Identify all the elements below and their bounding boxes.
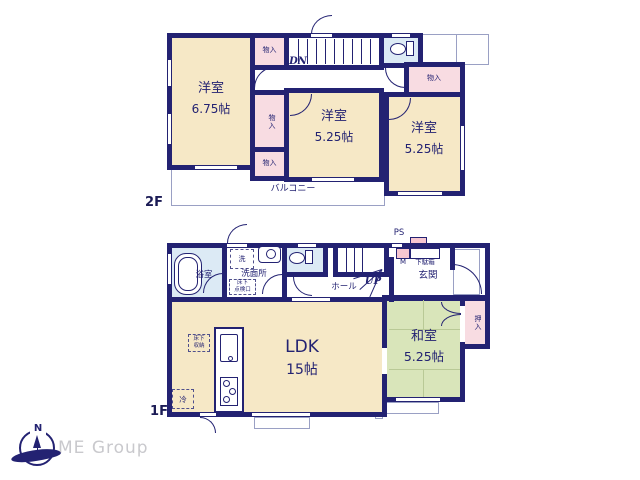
window xyxy=(392,33,410,38)
stove-burner-icon xyxy=(229,388,236,395)
floor1-label: 1F xyxy=(147,405,171,420)
ps-label: PS xyxy=(386,229,412,239)
bedroom2-name: 洋室 xyxy=(299,110,369,125)
closet-mid-label: 物入 xyxy=(263,100,276,144)
washitsu-size: 5.25帖 xyxy=(390,350,458,364)
ldk-entry-gap xyxy=(292,297,330,302)
stove-burner-icon xyxy=(223,396,230,403)
window xyxy=(167,60,172,86)
wall xyxy=(167,243,490,248)
bedroom1-name: 洋室 xyxy=(176,82,246,97)
fridge-label: 冷 xyxy=(179,395,187,404)
stairs-dn-label: DN xyxy=(286,56,310,68)
sink-basin-icon xyxy=(266,249,276,259)
bedroom2-size: 5.25帖 xyxy=(297,131,371,145)
washitsu-name: 和室 xyxy=(392,330,456,345)
floor-plan-canvas: バルコニー 洋室 6.75帖 物入 DN 物入 洋室 5.25帖 洋室 5.25… xyxy=(0,0,640,480)
stair-tread xyxy=(354,248,355,272)
backdoor-arc xyxy=(227,224,247,243)
toilet-bowl-2f-icon xyxy=(390,43,406,55)
toilet-bowl-1f-icon xyxy=(289,252,305,264)
bedroom3-name: 洋室 xyxy=(389,122,459,137)
meter-box: M xyxy=(396,248,410,259)
bedroom3-size: 5.25帖 xyxy=(387,143,461,157)
door-arc-ldk-terrace xyxy=(200,417,216,433)
balcony-label: バルコニー xyxy=(233,184,353,194)
compass-north-label: N xyxy=(30,423,46,435)
underfloor-inspection-box: 床下 点検口 xyxy=(229,279,256,295)
hall-label: ホール xyxy=(322,283,366,293)
door-arc-toilet-2f xyxy=(385,68,405,88)
entrance-label: 玄関 xyxy=(406,271,450,282)
oshiire-label: 押入 xyxy=(469,308,482,338)
window xyxy=(396,397,440,402)
ldk-name: LDK xyxy=(257,338,347,358)
underfloor-storage-label: 床下 収納 xyxy=(193,336,204,349)
door-gap xyxy=(227,243,247,248)
closet-top-label: 物入 xyxy=(252,46,287,54)
tatami-line xyxy=(389,369,460,370)
window xyxy=(167,114,172,144)
kitchen-faucet-icon xyxy=(228,356,233,361)
shoebox-label: 下駄箱 xyxy=(415,258,435,266)
ps-shaft xyxy=(410,237,427,244)
washer-label: 洗 xyxy=(239,255,246,263)
window xyxy=(398,191,442,196)
tatami-line xyxy=(423,300,424,329)
window xyxy=(298,243,316,248)
brand-logo-text: ME Group xyxy=(58,438,198,458)
closet-right-label: 物入 xyxy=(414,74,454,82)
compass-needle-icon xyxy=(33,435,41,448)
toilet-tank-1f-icon xyxy=(305,250,313,264)
underfloor-storage-box: 床下 収納 xyxy=(188,334,210,352)
window xyxy=(252,412,310,417)
terrace-outline xyxy=(254,417,310,429)
window xyxy=(195,165,237,170)
stair-tread xyxy=(346,248,347,272)
toilet-tank-2f-icon xyxy=(406,41,414,56)
washroom-label: 洗面所 xyxy=(225,270,283,280)
meter-label: M xyxy=(400,258,406,266)
stair-tread xyxy=(362,248,363,272)
door-arc-stairhall xyxy=(311,15,332,34)
washer-box: 洗 xyxy=(230,249,254,269)
floor2-label: 2F xyxy=(142,196,166,211)
window xyxy=(312,177,354,182)
shoebox-box: 下駄箱 xyxy=(410,248,440,259)
closet-low-label: 物入 xyxy=(252,159,287,167)
door-arc-toilet-1f xyxy=(293,277,312,296)
bath-label: 浴室 xyxy=(184,271,224,281)
bedroom1-size: 6.75帖 xyxy=(174,103,248,117)
eave-outline xyxy=(456,34,489,65)
wall xyxy=(384,295,490,301)
underfloor-inspection-label: 床下 点検口 xyxy=(234,280,251,293)
wall xyxy=(485,243,490,303)
ps-gap xyxy=(392,243,402,248)
tatami-line xyxy=(423,370,424,397)
ldk-size: 15帖 xyxy=(257,362,347,378)
eave-line xyxy=(423,34,457,35)
opening-ldk-washitsu xyxy=(382,348,387,374)
window xyxy=(167,254,172,284)
stove-burner-icon xyxy=(223,380,230,387)
terrace-outline xyxy=(385,402,439,414)
fridge-box: 冷 xyxy=(172,389,194,409)
